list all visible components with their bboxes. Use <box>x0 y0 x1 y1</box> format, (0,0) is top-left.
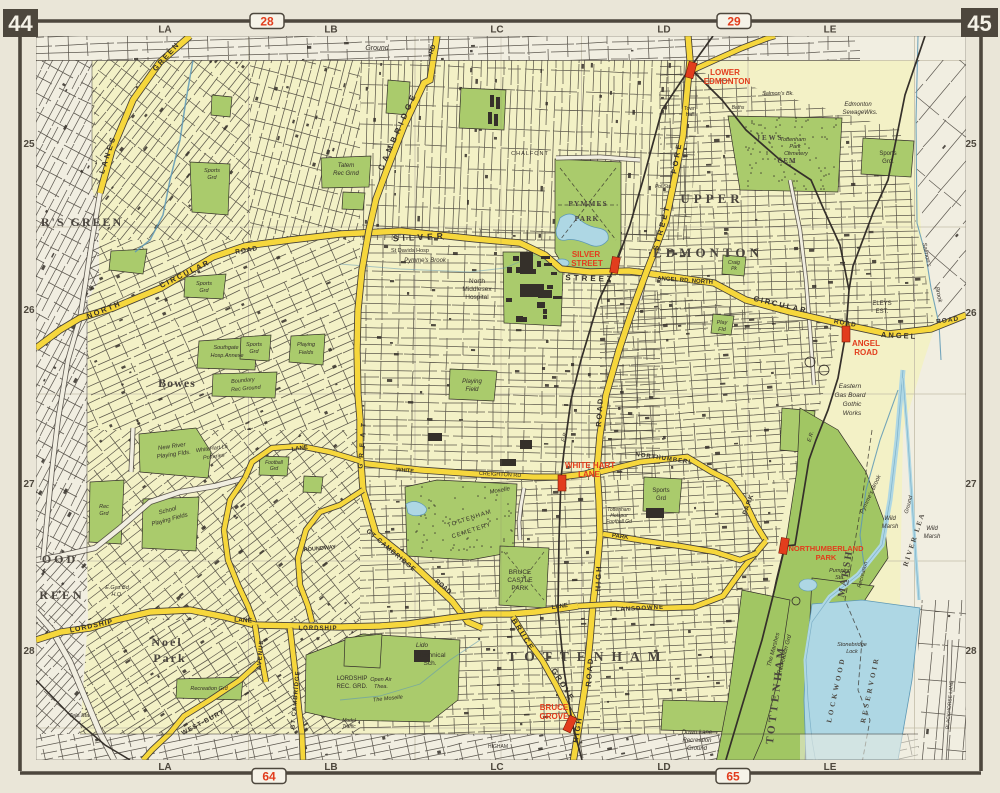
svg-text:ROAD: ROAD <box>854 348 878 357</box>
svg-text:BRUCE: BRUCE <box>509 569 532 576</box>
svg-text:WHITE HART: WHITE HART <box>565 461 615 470</box>
svg-text:EDMONTON: EDMONTON <box>704 77 751 86</box>
svg-text:Gas Board: Gas Board <box>834 392 865 399</box>
svg-text:LORDSHIP: LORDSHIP <box>298 626 337 632</box>
svg-text:Lido: Lido <box>416 642 429 649</box>
svg-text:45: 45 <box>967 11 991 36</box>
svg-text:Sports: Sports <box>879 151 896 157</box>
svg-text:Open Air: Open Air <box>370 677 393 683</box>
svg-text:64: 64 <box>262 770 276 784</box>
svg-text:Pymme's Brook: Pymme's Brook <box>404 258 447 264</box>
svg-text:Thea.: Thea. <box>374 684 388 690</box>
svg-text:Fld: Fld <box>718 327 727 333</box>
svg-text:H.Q.: H.Q. <box>111 592 122 598</box>
svg-text:Grd: Grd <box>199 288 209 294</box>
svg-text:Rec: Rec <box>99 504 109 510</box>
svg-text:ELEYS: ELEYS <box>872 301 891 307</box>
svg-text:SewageWks.: SewageWks. <box>842 110 877 116</box>
svg-text:LORDSHIP: LORDSHIP <box>337 676 368 682</box>
svg-text:EST.: EST. <box>876 309 889 315</box>
svg-text:LD: LD <box>657 762 670 773</box>
svg-text:CASTLE: CASTLE <box>507 577 533 584</box>
svg-text:Grd: Grd <box>207 175 217 181</box>
svg-text:Tatem: Tatem <box>338 163 354 169</box>
svg-text:25: 25 <box>965 139 977 150</box>
svg-text:Edmonton: Edmonton <box>844 102 872 108</box>
svg-text:Playing: Playing <box>462 379 482 385</box>
svg-text:ANGEL: ANGEL <box>881 330 918 341</box>
svg-text:Baths: Baths <box>732 105 745 111</box>
svg-text:Hospital: Hospital <box>465 294 489 301</box>
svg-text:Sports: Sports <box>652 488 669 494</box>
svg-text:St Davids Hosp: St Davids Hosp <box>391 248 429 254</box>
svg-text:Marsh: Marsh <box>882 524 899 530</box>
svg-text:LE: LE <box>824 25 837 36</box>
svg-text:EDMONTON: EDMONTON <box>653 245 763 260</box>
svg-text:26: 26 <box>965 308 977 319</box>
svg-text:Works: Works <box>843 410 862 417</box>
svg-text:Park: Park <box>789 144 801 150</box>
svg-text:PARK: PARK <box>575 214 600 223</box>
svg-text:Grd: Grd <box>99 511 109 517</box>
svg-text:LANE: LANE <box>234 617 253 625</box>
svg-text:HIGH: HIGH <box>594 564 604 591</box>
svg-text:OOD: OOD <box>42 552 78 566</box>
svg-text:Tele.Sta.: Tele.Sta. <box>69 713 91 719</box>
svg-text:LB: LB <box>324 762 337 773</box>
svg-text:LB: LB <box>324 25 337 36</box>
svg-text:Gothic: Gothic <box>843 401 863 408</box>
svg-text:Football Gd: Football Gd <box>606 519 632 525</box>
svg-text:27: 27 <box>965 479 977 490</box>
svg-text:Middlesex: Middlesex <box>462 286 492 293</box>
svg-text:29: 29 <box>727 15 741 29</box>
svg-text:REEN: REEN <box>39 588 84 602</box>
svg-text:LA: LA <box>158 762 171 773</box>
svg-text:GROVE: GROVE <box>540 712 570 721</box>
svg-text:Sta.: Sta. <box>835 575 845 581</box>
svg-text:Marsh: Marsh <box>924 534 941 540</box>
svg-text:Ground: Ground <box>365 45 389 52</box>
svg-text:Technical: Technical <box>418 652 446 659</box>
svg-text:Park: Park <box>153 651 186 665</box>
svg-text:Pol.Sta: Pol.Sta <box>655 184 671 190</box>
svg-text:Playing: Playing <box>297 342 316 348</box>
svg-text:Grd: Grd <box>656 496 666 502</box>
svg-text:Grd.: Grd. <box>882 159 894 165</box>
svg-text:Recreation Grd: Recreation Grd <box>190 686 228 692</box>
svg-text:65: 65 <box>726 770 740 784</box>
svg-text:E.Gas Bd: E.Gas Bd <box>105 585 129 591</box>
svg-text:Noel: Noel <box>151 635 182 649</box>
svg-text:44: 44 <box>8 11 33 36</box>
svg-text:Pumping: Pumping <box>829 568 852 574</box>
svg-text:Pk: Pk <box>731 266 737 272</box>
svg-text:Tottenham: Tottenham <box>780 137 806 143</box>
svg-text:Sports: Sports <box>196 281 212 287</box>
svg-text:28: 28 <box>260 15 274 29</box>
svg-text:LA: LA <box>158 25 171 36</box>
svg-text:HIGHAM: HIGHAM <box>488 744 508 750</box>
svg-text:STREET: STREET <box>565 273 615 284</box>
svg-text:North: North <box>469 278 485 285</box>
svg-text:LOWER: LOWER <box>710 68 740 77</box>
svg-text:BRUCE: BRUCE <box>540 703 569 712</box>
svg-text:25: 25 <box>23 139 35 150</box>
svg-text:LE: LE <box>824 762 837 773</box>
svg-text:PARK: PARK <box>511 585 529 592</box>
svg-text:Field: Field <box>465 387 479 393</box>
svg-text:SILVER: SILVER <box>572 250 601 259</box>
svg-text:Fields: Fields <box>299 350 314 356</box>
svg-text:LD: LD <box>657 25 670 36</box>
svg-text:28: 28 <box>23 646 35 657</box>
svg-text:STREET: STREET <box>571 259 603 268</box>
svg-text:Sports: Sports <box>204 168 220 174</box>
svg-text:Bowes: Bowes <box>158 376 196 390</box>
svg-text:Stonebridge: Stonebridge <box>837 642 867 648</box>
svg-text:Down Lane: Down Lane <box>682 730 713 736</box>
svg-text:Rec Grnd: Rec Grnd <box>333 171 359 177</box>
svg-text:Traffic: Traffic <box>342 724 356 730</box>
svg-text:Play: Play <box>717 320 729 326</box>
svg-text:Grd: Grd <box>270 466 279 472</box>
svg-text:Wild: Wild <box>926 526 938 532</box>
svg-text:ANGEL: ANGEL <box>852 339 880 348</box>
svg-text:27: 27 <box>23 479 35 490</box>
svg-text:NORTHUMBERLAND: NORTHUMBERLAND <box>789 544 865 553</box>
svg-text:R'S GREEN: R'S GREEN <box>41 215 123 229</box>
svg-text:REC. GRD.: REC. GRD. <box>336 684 367 690</box>
svg-text:Wild: Wild <box>884 516 896 522</box>
svg-text:Grd: Grd <box>249 349 259 355</box>
svg-text:LC: LC <box>490 762 503 773</box>
svg-text:28: 28 <box>965 646 977 657</box>
svg-text:Salmon's Bk.: Salmon's Bk. <box>762 91 794 97</box>
svg-text:UPPER: UPPER <box>680 191 743 206</box>
svg-text:PYMMES: PYMMES <box>568 199 607 208</box>
svg-text:Lock: Lock <box>846 649 858 655</box>
svg-text:CHALFONT: CHALFONT <box>511 151 549 157</box>
svg-text:CEM: CEM <box>777 157 796 165</box>
svg-text:PARK: PARK <box>816 553 837 562</box>
svg-text:Sports: Sports <box>246 342 262 348</box>
svg-text:Southgate: Southgate <box>213 345 238 351</box>
svg-text:Sch.: Sch. <box>423 660 436 667</box>
svg-text:Hall: Hall <box>686 112 695 118</box>
svg-text:Hosp.Annexe: Hosp.Annexe <box>210 353 243 359</box>
svg-text:Cemetery: Cemetery <box>784 151 809 157</box>
svg-text:26: 26 <box>23 305 35 316</box>
svg-text:Recreation: Recreation <box>682 738 712 744</box>
svg-text:LC: LC <box>490 25 503 36</box>
svg-text:Ground: Ground <box>687 746 708 752</box>
svg-text:Eastern: Eastern <box>839 383 862 390</box>
svg-text:LANE: LANE <box>578 470 600 479</box>
